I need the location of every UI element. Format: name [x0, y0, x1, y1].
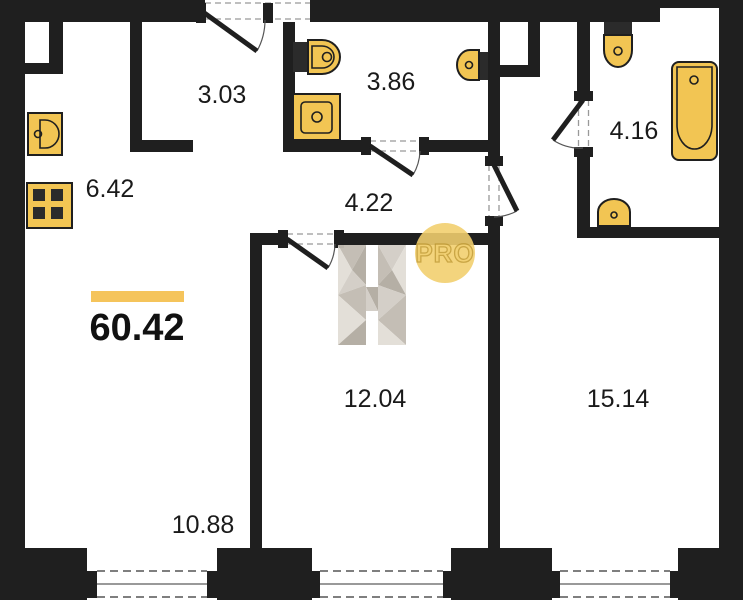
wall-segment [283, 140, 370, 152]
wall-segment [130, 140, 193, 152]
wall-segment [577, 148, 590, 227]
pro-badge-text: PRO [415, 238, 474, 268]
duct-wall [528, 21, 540, 67]
wall-segment [719, 0, 743, 600]
wall-segment [678, 548, 743, 600]
bathroom-door [553, 91, 593, 157]
window [310, 571, 451, 598]
wall-segment [451, 548, 552, 600]
wall-segment [590, 0, 660, 22]
wall-segment [488, 0, 500, 548]
room-label-wc: 3.86 [367, 68, 416, 96]
wall-segment [577, 22, 590, 100]
room-label-kitchen: 6.42 [86, 175, 135, 203]
duct-wall [500, 65, 540, 77]
wall-segment [217, 548, 312, 600]
wall-segment [310, 0, 590, 22]
shower-tray-icon [293, 94, 340, 140]
h-logo-icon [338, 245, 406, 345]
window [87, 571, 217, 598]
room-label-hallway: 3.03 [198, 81, 247, 109]
total-area: 60.42 [89, 291, 184, 349]
wall-segment [130, 22, 142, 152]
wall-segment [0, 548, 87, 600]
window [552, 571, 678, 598]
room-label-bedroom: 12.04 [344, 385, 407, 413]
toilet-icon [604, 22, 632, 67]
wall-segment [250, 245, 262, 548]
kitchen-sink-icon [28, 113, 62, 155]
wall-segment [0, 0, 205, 22]
pro-badge: PRO [415, 223, 475, 283]
total-area-value: 60.42 [89, 307, 184, 349]
total-area-underline [91, 291, 184, 302]
wc-door [361, 137, 429, 175]
bidet-icon [457, 50, 488, 80]
windows [87, 571, 678, 598]
wall-segment [577, 227, 743, 238]
floor-plan: PRO 3.03 3.86 4.16 6.42 4.22 12.04 15.14… [0, 0, 743, 600]
toilet-icon [293, 40, 340, 74]
stove-icon [27, 183, 72, 228]
bathtub-icon [672, 62, 717, 160]
room-label-corridor: 4.22 [345, 189, 394, 217]
room-label-living-room: 10.88 [172, 511, 235, 539]
vent-shaft-wall [25, 63, 63, 74]
room-label-bathroom: 4.16 [610, 117, 659, 145]
wall-segment [0, 0, 25, 600]
room-label-master-bedroom: 15.14 [587, 385, 650, 413]
wall-segment [660, 0, 723, 8]
bedroom-door [278, 230, 344, 268]
washbasin-icon [598, 199, 630, 226]
